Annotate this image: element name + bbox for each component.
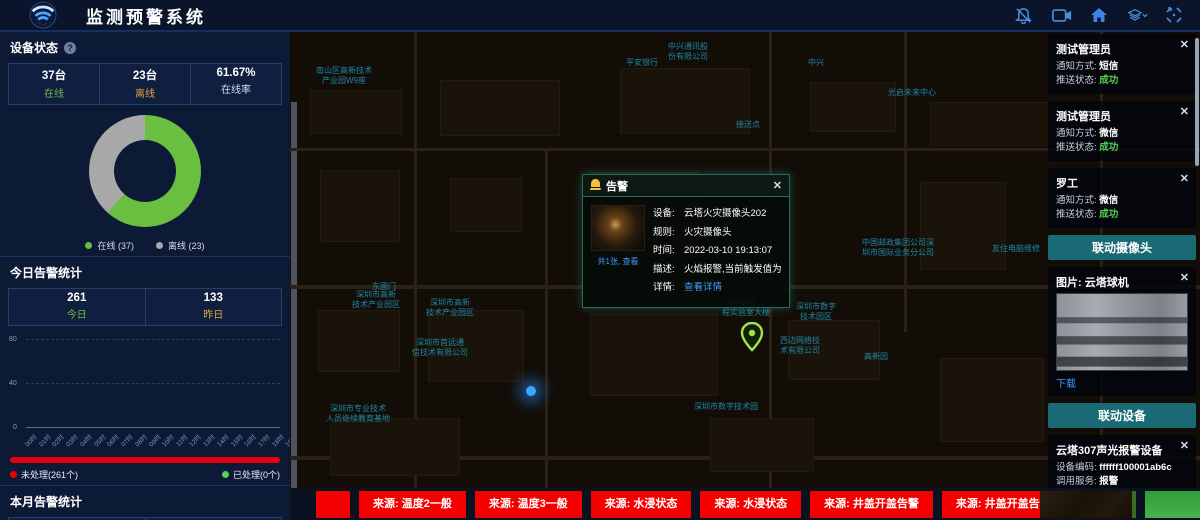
card-title: 测试管理员 — [1056, 108, 1188, 124]
map-road — [545, 148, 548, 488]
card-row: 推送状态: 成功 — [1056, 141, 1188, 155]
map-road — [291, 102, 297, 488]
alert-detail-row: 描述:火焰报警,当前触发值为... — [653, 261, 781, 280]
card-row: 设备编码: ffffff100001ab6c — [1056, 461, 1188, 475]
stat-label: 在线 — [9, 85, 99, 100]
donut-hole — [114, 140, 176, 202]
card-row-label: 通知方式: — [1056, 195, 1099, 206]
card-row-label: 调用服务: — [1056, 476, 1099, 487]
card-row: 通知方式: 短信 — [1056, 60, 1188, 74]
card-row-label: 推送状态: — [1056, 142, 1099, 153]
card-title: 罗工 — [1056, 175, 1188, 191]
legend-label: 在线 (37) — [97, 239, 134, 252]
linked-camera-section-header[interactable]: 联动摄像头 — [1048, 235, 1196, 260]
today-alarm-bar-chart: 40800 — [26, 340, 280, 428]
legend-dot-icon — [85, 242, 92, 249]
map-marker-pin-icon[interactable] — [740, 322, 764, 357]
ticker-alert-item[interactable]: 来源: 井盖开盖告警 — [810, 491, 933, 518]
ticker-snapshot-green[interactable] — [1145, 491, 1200, 518]
map-label: 高新园 — [864, 352, 888, 362]
device-status-donut-wrap — [0, 115, 290, 227]
view-detail-link[interactable]: 查看详情 — [684, 279, 722, 298]
map-label: 西边网络技 术有限公司 — [780, 336, 820, 357]
device-stat-cell: 37台在线 — [9, 64, 99, 104]
map-label: 中兴通讯股 份有限公司 — [668, 42, 708, 63]
ticker-item-list: 来源: 温度2一般来源: 温度3一般来源: 水浸状态来源: 水浸状态来源: 井盖… — [316, 491, 1031, 518]
notification-card-list: ✕测试管理员通知方式: 短信推送状态: 成功✕测试管理员通知方式: 微信推送状态… — [1048, 34, 1196, 228]
map-marker-dot[interactable] — [526, 386, 536, 396]
green-dot-icon — [222, 471, 229, 478]
alert-detail-value: 火焰报警,当前触发值为... — [684, 261, 781, 280]
notification-card: ✕测试管理员通知方式: 微信推送状态: 成功 — [1048, 101, 1196, 161]
gridline: 40 — [26, 383, 280, 384]
map-label: 中兴 — [808, 58, 824, 68]
notification-card: ✕罗工通知方式: 微信推送状态: 成功 — [1048, 168, 1196, 228]
ticker-alert-item[interactable]: 来源: 水浸状态 — [591, 491, 692, 518]
map-label: 中国邮政集团公司深 圳市国际业务分公司 — [862, 238, 934, 259]
close-icon[interactable]: ✕ — [1180, 271, 1189, 284]
map-road — [904, 32, 907, 332]
map-label: 深圳市数字技术园 — [694, 402, 758, 412]
donut-legend: 在线 (37)离线 (23) — [0, 239, 290, 252]
map-building — [930, 102, 1050, 146]
card-row-value: 成功 — [1099, 209, 1118, 220]
map-building — [620, 68, 750, 134]
stat-value: 261 — [9, 292, 145, 304]
alert-detail-label: 详情: — [653, 279, 684, 298]
stat-label: 昨日 — [146, 306, 282, 321]
top-header: 监测预警系统 — [0, 0, 1200, 32]
unprocessed-label: 未处理(261个) — [21, 468, 78, 481]
unprocessed-progress-bar — [10, 457, 280, 463]
y-tick-label: 80 — [9, 336, 17, 343]
map-label: 光启未来中心 — [888, 88, 936, 98]
map-building — [940, 358, 1044, 442]
today-stat-cell: 133昨日 — [145, 289, 282, 325]
card-row-value: 成功 — [1099, 142, 1118, 153]
device-status-stats: 37台在线23台离线61.67%在线率 — [8, 63, 282, 105]
map-label: 深圳市高新 技术产业园区 — [352, 290, 400, 311]
close-icon[interactable]: ✕ — [1180, 172, 1189, 185]
card-row-label: 通知方式: — [1056, 128, 1099, 139]
alert-popup-close-icon[interactable]: ✕ — [773, 179, 782, 192]
app-root: 监测预警系统 设备状态 ? 37台在线23台离线61.67%在线率 — [0, 0, 1200, 520]
stat-value: 37台 — [9, 67, 99, 83]
stat-value: 23台 — [100, 67, 190, 83]
device-status-header: 设备状态 ? — [0, 32, 290, 61]
camera-card: ✕ 图片: 云塔球机 下载 — [1048, 267, 1196, 396]
legend-dot-icon — [156, 242, 163, 249]
stat-value: 133 — [146, 292, 282, 304]
map-label: 深圳市高新 技术产业园区 — [426, 298, 474, 319]
alert-popup-header: 告警 ✕ — [583, 175, 789, 197]
alert-detail-label: 设备: — [653, 205, 684, 224]
alert-detail-row: 规则:火灾摄像头 — [653, 224, 781, 243]
processed-label: 已处理(0个) — [233, 468, 280, 481]
month-alarm-title: 本月告警统计 — [10, 493, 82, 510]
map-building — [320, 170, 400, 242]
map-label: 深圳市数字 技术园区 — [796, 302, 836, 323]
alert-thumb-wrap: 共1张, 查看 — [591, 205, 645, 298]
progress-legend: 未处理(261个) 已处理(0个) — [10, 468, 280, 481]
left-stats-panel: 设备状态 ? 37台在线23台离线61.67%在线率 在线 (37)离线 (23… — [0, 32, 290, 520]
alert-detail-row: 设备:云塔火灾摄像头202 — [653, 205, 781, 224]
alert-popup-body: 共1张, 查看 设备:云塔火灾摄像头202规则:火灾摄像头时间:2022-03-… — [583, 197, 789, 307]
notifications-muted-icon[interactable] — [1014, 6, 1034, 24]
alert-popup-title: 告警 — [606, 178, 768, 194]
stat-label: 今日 — [9, 306, 145, 321]
card-row-label: 通知方式: — [1056, 61, 1099, 72]
alert-ticker-bar: 来源: 温度2一般来源: 温度3一般来源: 水浸状态来源: 水浸状态来源: 井盖… — [290, 488, 1200, 520]
map-building — [440, 80, 560, 136]
home-icon[interactable] — [1090, 6, 1110, 24]
ticker-snapshot-dark[interactable] — [1040, 491, 1136, 518]
map-building — [590, 314, 718, 396]
today-alarm-title: 今日告警统计 — [10, 264, 82, 281]
card-row-label: 推送状态: — [1056, 75, 1099, 86]
card-row: 调用服务: 报警 — [1056, 475, 1188, 489]
card-row-value: 报警 — [1099, 476, 1118, 487]
map-building — [450, 178, 522, 232]
legend-item: 在线 (37) — [85, 239, 134, 252]
bar-chart-x-axis: 00时01时02时03时04时05时06时07时08时09时10时11时12时1… — [26, 429, 280, 451]
today-stat-cell: 261今日 — [9, 289, 145, 325]
alert-detail-row: 时间:2022-03-10 19:13:07 — [653, 242, 781, 261]
card-row-value: 成功 — [1099, 75, 1118, 86]
card-row-value: ffffff100001ab6c — [1099, 462, 1171, 473]
unprocessed-legend-item: 未处理(261个) — [10, 468, 78, 481]
map-label: 接送点 — [736, 120, 760, 130]
download-link[interactable]: 下载 — [1056, 375, 1188, 390]
map-label: 深圳市首远通 信技术有限公司 — [412, 338, 468, 359]
map-label: 南山区高新技术 产业园W9座 — [316, 66, 372, 87]
alert-detail-value: 2022-03-10 19:13:07 — [684, 242, 772, 261]
help-icon[interactable]: ? — [64, 42, 76, 54]
y-tick-label: 40 — [9, 380, 17, 387]
card-row: 推送状态: 成功 — [1056, 208, 1188, 222]
card-row: 推送状态: 成功 — [1056, 74, 1188, 88]
device-stat-cell: 23台离线 — [99, 64, 190, 104]
card-row-value: 微信 — [1099, 128, 1118, 139]
card-row-value: 短信 — [1099, 61, 1118, 72]
card-title: 云塔307声光报警设备 — [1056, 442, 1188, 458]
y-tick-label: 0 — [13, 424, 17, 431]
device-status-title: 设备状态 — [10, 39, 58, 56]
fullscreen-icon[interactable] — [1166, 6, 1186, 24]
stat-label: 离线 — [100, 85, 190, 100]
card-title: 测试管理员 — [1056, 41, 1188, 57]
alert-detail-value: 云塔火灾摄像头202 — [684, 205, 766, 224]
alert-detail-row: 详情:查看详情 — [653, 279, 781, 298]
right-panel-scrollbar[interactable] — [1195, 38, 1199, 166]
stat-label: 在线率 — [191, 81, 281, 96]
gridline: 80 — [26, 339, 280, 340]
ticker-alert-item[interactable]: 来源: 温度3一般 — [475, 491, 582, 518]
card-row-label: 设备编码: — [1056, 462, 1099, 473]
map-label: 友住电脑维修 — [992, 244, 1040, 254]
alert-popup: 告警 ✕ 共1张, 查看 设备:云塔火灾摄像头202规则:火灾摄像头时间:202… — [582, 174, 790, 308]
notification-card: ✕测试管理员通知方式: 短信推送状态: 成功 — [1048, 34, 1196, 94]
camera-snapshot-image — [1056, 293, 1188, 371]
today-alarm-header: 今日告警统计 — [0, 256, 290, 286]
map-building — [330, 418, 460, 476]
map-label: 平安银行 — [626, 58, 658, 68]
app-logo-icon — [28, 1, 58, 29]
close-icon[interactable]: ✕ — [1180, 38, 1189, 51]
map-label: 深圳市专业技术 人员继续教育基地 — [326, 404, 390, 425]
snapshot-view-link[interactable]: 共1张, 查看 — [591, 256, 645, 267]
ticker-alert-item[interactable] — [316, 491, 350, 518]
red-dot-icon — [10, 471, 17, 478]
alert-detail-rows: 设备:云塔火灾摄像头202规则:火灾摄像头时间:2022-03-10 19:13… — [653, 205, 781, 298]
video-camera-icon[interactable] — [1052, 6, 1072, 24]
bar-series — [26, 340, 280, 427]
map-building — [318, 310, 400, 372]
device-stat-cell: 61.67%在线率 — [190, 64, 281, 104]
device-status-donut-chart — [89, 115, 201, 227]
ticker-alert-item[interactable]: 来源: 温度2一般 — [359, 491, 466, 518]
header-icon-group — [1014, 6, 1186, 24]
card-row-value: 微信 — [1099, 195, 1118, 206]
close-icon[interactable]: ✕ — [1180, 439, 1189, 452]
card-row: 通知方式: 微信 — [1056, 194, 1188, 208]
map-building — [810, 82, 896, 132]
linked-device-section-header[interactable]: 联动设备 — [1048, 403, 1196, 428]
alert-detail-label: 描述: — [653, 261, 684, 280]
card-row: 通知方式: 微信 — [1056, 127, 1188, 141]
legend-item: 离线 (23) — [156, 239, 205, 252]
alert-detail-value: 火灾摄像头 — [684, 224, 732, 243]
ticker-alert-item[interactable]: 来源: 水浸状态 — [700, 491, 801, 518]
legend-label: 离线 (23) — [168, 239, 205, 252]
camera-card-title: 图片: 云塔球机 — [1056, 274, 1188, 290]
alert-detail-label: 规则: — [653, 224, 684, 243]
right-linkage-panel: ✕测试管理员通知方式: 短信推送状态: 成功✕测试管理员通知方式: 微信推送状态… — [1048, 34, 1196, 488]
close-icon[interactable]: ✕ — [1180, 105, 1189, 118]
stat-value: 61.67% — [191, 67, 281, 79]
fire-snapshot-image[interactable] — [591, 205, 645, 251]
processed-legend-item: 已处理(0个) — [222, 468, 280, 481]
map-building — [710, 418, 814, 472]
alert-detail-label: 时间: — [653, 242, 684, 261]
map-building — [310, 90, 402, 134]
today-alarm-stats: 261今日133昨日 — [8, 288, 282, 326]
card-row-label: 推送状态: — [1056, 209, 1099, 220]
month-alarm-header: 本月告警统计 — [0, 485, 290, 515]
layers-icon[interactable] — [1128, 6, 1148, 24]
page-title: 监测预警系统 — [86, 3, 206, 28]
alarm-lamp-icon — [590, 179, 601, 192]
